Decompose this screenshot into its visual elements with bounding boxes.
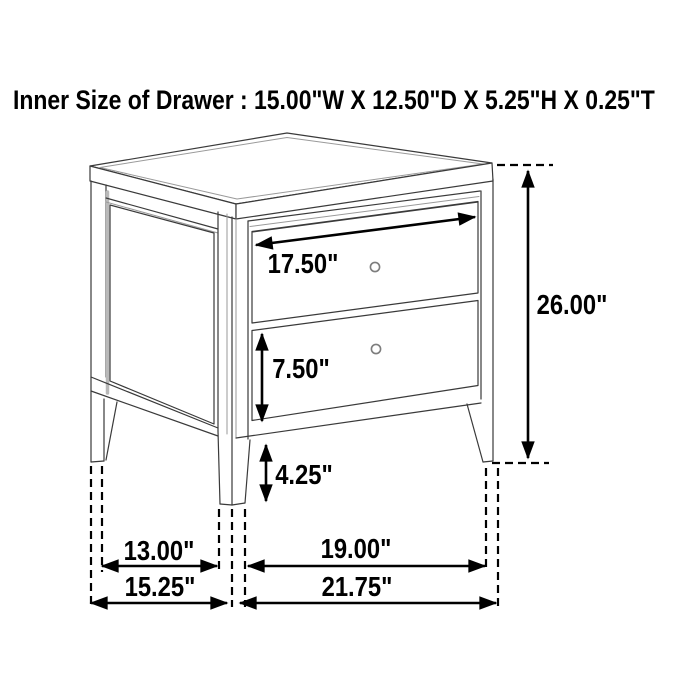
dim-label-overall-width: 21.75": [322, 571, 393, 603]
dim-label-side-inner-span: 13.00": [124, 535, 195, 567]
dim-label-floor-to-rail: 4.25": [275, 459, 333, 491]
center-leg-taper: [245, 440, 250, 503]
side-panel: [91, 181, 236, 505]
front-left-leg-taper: [106, 402, 117, 460]
nightstand-drawing: [90, 133, 493, 505]
tabletop: [90, 133, 493, 219]
dim-label-overall-depth: 15.25": [125, 571, 196, 603]
dim-label-overall-height: 26.00": [537, 289, 608, 321]
side-bottom-rail-bottom: [91, 391, 218, 436]
diagram-canvas: Inner Size of Drawer : 15.00"W X 12.50"D…: [0, 0, 700, 700]
dim-label-drawer-face-height: 7.50": [272, 353, 330, 385]
drawer-knob-icon: [370, 262, 379, 271]
right-leg-taper: [467, 404, 483, 462]
side-bottom-rail-top: [91, 377, 218, 428]
drawer-knob-icon: [371, 344, 380, 353]
dim-label-drawer-face-width: 17.50": [268, 248, 339, 280]
front-left-leg-bottom: [91, 461, 104, 462]
front-face: [236, 179, 493, 461]
right-leg-bottom: [483, 461, 493, 462]
center-leg-left-edge: [218, 431, 220, 504]
dim-label-front-inner-span: 19.00": [321, 533, 392, 565]
